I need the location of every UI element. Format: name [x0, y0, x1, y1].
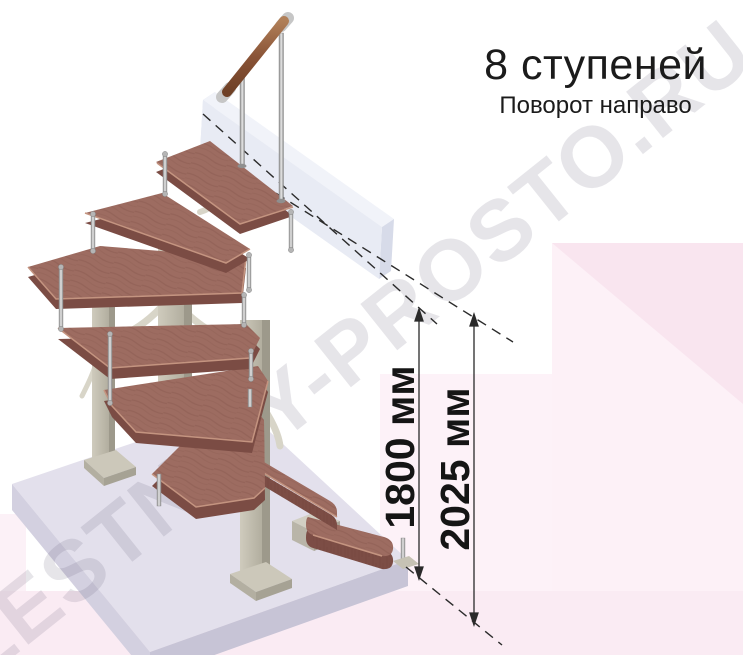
stair-tread — [104, 366, 268, 453]
page-subtitle: Поворот направо — [484, 93, 707, 119]
staircase-diagram: LESTNICY-PROSTO.RU — [0, 0, 743, 655]
header: 8 ступеней Поворот направо — [484, 42, 707, 119]
wooden-handrail — [227, 21, 284, 92]
page-title: 8 ступеней — [484, 42, 707, 88]
dimension-label-2025: 2025 мм — [432, 363, 478, 575]
dimension-label-1800: 1800 мм — [377, 341, 423, 553]
